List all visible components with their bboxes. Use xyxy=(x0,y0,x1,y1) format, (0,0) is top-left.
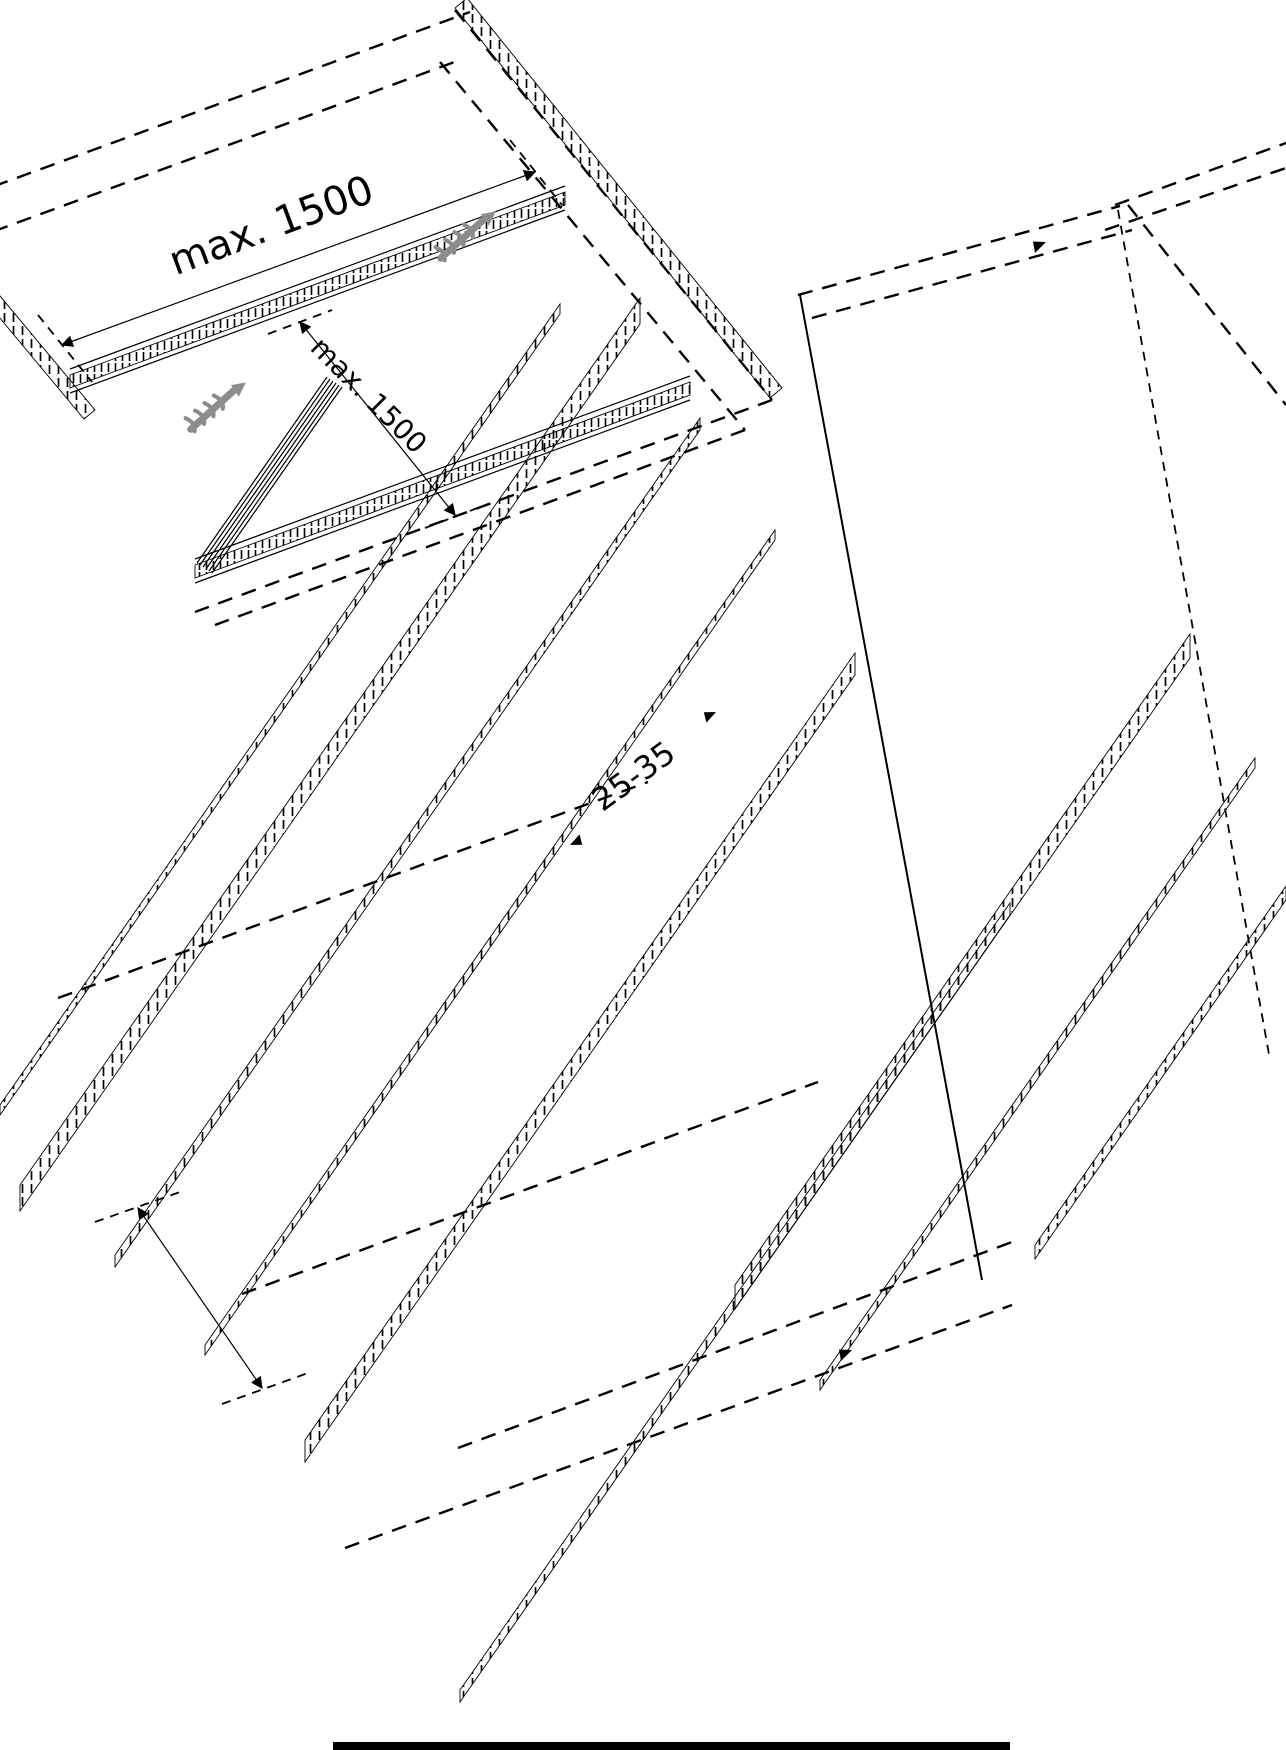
panel-corner-dash xyxy=(1105,168,1286,230)
hatch-band xyxy=(115,418,700,1267)
wall-edge-hatching xyxy=(0,0,782,419)
dashed-line xyxy=(345,1305,1012,1548)
panel-side-hidden xyxy=(1118,210,1270,1060)
dashed-line xyxy=(58,782,648,998)
panel-hidden-lines xyxy=(58,782,1012,1548)
dimension-label-edge-distance: 25-35 xyxy=(585,733,683,818)
dimension-arrowhead xyxy=(701,706,718,722)
wall-outline-dashed xyxy=(0,10,772,625)
extension-line xyxy=(222,1373,308,1404)
wall-edge-bottom-outer xyxy=(195,400,772,612)
panel-edge-bands xyxy=(0,298,1286,1702)
panel-top-edge xyxy=(798,206,1120,295)
dashed-line xyxy=(458,1242,1012,1448)
screw-icon-1 xyxy=(432,206,502,262)
dimension-bottom-left xyxy=(95,1192,308,1404)
panel-side-edge xyxy=(800,295,982,1280)
reference-arrowhead xyxy=(1030,236,1048,253)
wall-edge-top-inner xyxy=(0,60,460,240)
dashed-line xyxy=(242,1082,818,1294)
extension-line xyxy=(510,140,562,205)
dimension-arrowhead xyxy=(568,834,585,850)
isometric-installation-drawing: max. 1500 max. 1500 xyxy=(0,0,1286,1750)
dimension-rail-spacing-side: max. 1500 xyxy=(268,310,488,528)
screw-icon-2 xyxy=(182,377,252,433)
drawing-page: max. 1500 max. 1500 xyxy=(0,0,1286,1750)
panel-depth-edge xyxy=(1128,205,1286,405)
reference-arrows xyxy=(836,236,1048,1361)
hatch-band xyxy=(205,530,775,1355)
rail-line xyxy=(195,376,690,559)
panel-top-edge-inner xyxy=(812,230,1132,318)
extension-line xyxy=(95,1192,180,1222)
bottom-frame-bar xyxy=(333,1742,1010,1750)
hatch-band xyxy=(305,653,855,1462)
hatch-band xyxy=(20,298,640,1211)
hatch-band xyxy=(0,304,560,1115)
dimension-label-rail-spacing-top: max. 1500 xyxy=(163,167,380,285)
wall-edge-top-outer xyxy=(0,12,470,195)
panel-corner-dash xyxy=(1115,143,1286,205)
hatch-band xyxy=(0,290,95,419)
dimension-rail-spacing-top: max. 1500 xyxy=(38,140,562,382)
